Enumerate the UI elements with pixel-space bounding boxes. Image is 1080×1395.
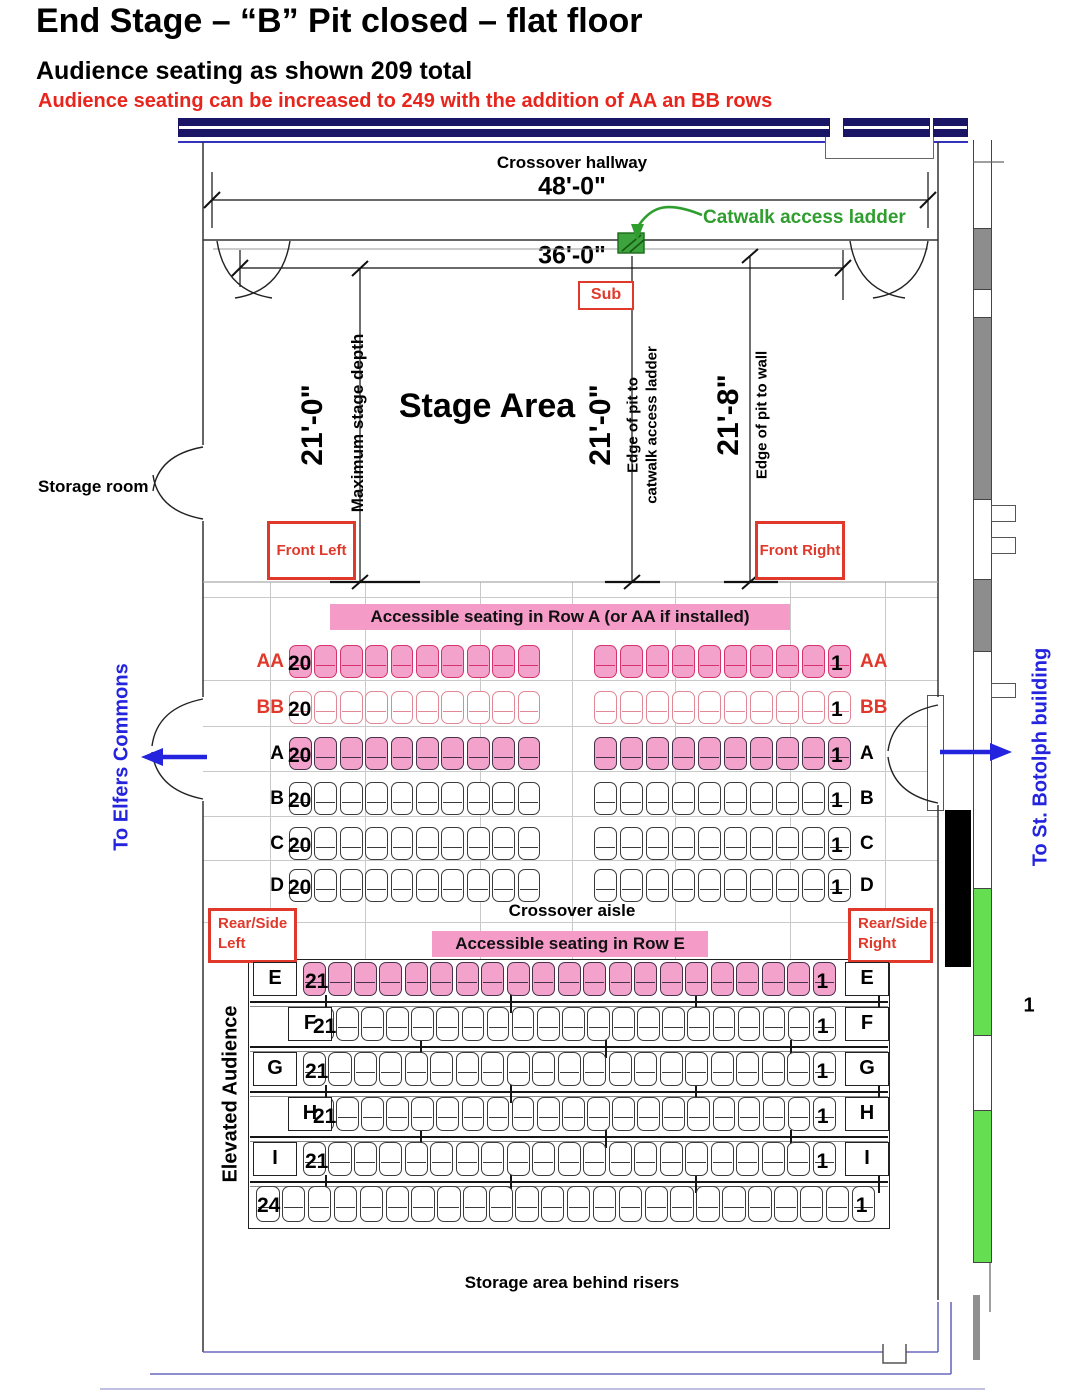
seat bbox=[391, 827, 414, 860]
seat bbox=[736, 962, 759, 996]
seat bbox=[672, 645, 695, 678]
seat bbox=[802, 869, 825, 902]
rear-side-right-box: Rear/Side Right bbox=[848, 908, 933, 963]
seat bbox=[441, 827, 464, 860]
seat bbox=[594, 782, 617, 815]
row-label: A bbox=[236, 744, 284, 763]
seat bbox=[762, 1142, 785, 1176]
stage-depth-dimension: 21'-0" bbox=[296, 384, 330, 465]
seat bbox=[379, 1142, 402, 1176]
seat-number: 1 bbox=[831, 790, 843, 811]
seat-number: 1 bbox=[831, 653, 843, 674]
seat bbox=[361, 1097, 384, 1131]
seat bbox=[340, 691, 363, 724]
seat bbox=[672, 827, 695, 860]
seat bbox=[492, 827, 515, 860]
row-label-box: I bbox=[253, 1142, 297, 1176]
row-label-box: E bbox=[253, 962, 297, 996]
wall-recess bbox=[825, 137, 934, 159]
seat bbox=[336, 1097, 359, 1131]
seat bbox=[802, 737, 825, 770]
row-label: D bbox=[860, 876, 908, 895]
seat bbox=[645, 1186, 669, 1222]
seat bbox=[736, 1142, 759, 1176]
pit-to-ladder-caption: catwalk access ladder bbox=[644, 346, 661, 504]
accessible-row-a-banner: Accessible seating in Row A (or AA if in… bbox=[330, 604, 790, 630]
botolph-arrowhead-icon bbox=[990, 743, 1012, 761]
seat bbox=[411, 1186, 435, 1222]
seat bbox=[365, 869, 388, 902]
seat bbox=[441, 737, 464, 770]
seat bbox=[340, 869, 363, 902]
seat bbox=[660, 1052, 683, 1086]
to-elfers-commons-label: To Elfers Commons bbox=[111, 663, 134, 850]
seat bbox=[750, 737, 773, 770]
seat bbox=[467, 782, 490, 815]
seat bbox=[467, 827, 490, 860]
seat bbox=[672, 737, 695, 770]
seat bbox=[738, 1097, 761, 1131]
seat bbox=[662, 1097, 685, 1131]
seat bbox=[411, 1007, 434, 1041]
seat bbox=[518, 645, 541, 678]
grid-line-h bbox=[203, 860, 938, 861]
stage-area-label: Stage Area bbox=[397, 384, 577, 430]
seat bbox=[724, 782, 747, 815]
seat bbox=[340, 782, 363, 815]
seat bbox=[354, 962, 377, 996]
seat-number: 1 bbox=[817, 1061, 829, 1082]
seat bbox=[748, 1186, 772, 1222]
seat bbox=[518, 782, 541, 815]
sub-speaker-box: Sub bbox=[578, 281, 634, 310]
seat bbox=[456, 1142, 479, 1176]
seat bbox=[634, 1142, 657, 1176]
row-label: C bbox=[236, 834, 284, 853]
seat bbox=[379, 1052, 402, 1086]
seat bbox=[724, 645, 747, 678]
seat bbox=[687, 1097, 710, 1131]
seat bbox=[379, 962, 402, 996]
seat bbox=[609, 1142, 632, 1176]
seat bbox=[762, 1052, 785, 1086]
seat bbox=[609, 962, 632, 996]
seat bbox=[391, 645, 414, 678]
seat bbox=[386, 1007, 409, 1041]
catwalk-pointer-arrow bbox=[639, 207, 702, 225]
seat bbox=[698, 827, 721, 860]
seat bbox=[391, 869, 414, 902]
seat bbox=[672, 782, 695, 815]
top-wall-segment bbox=[843, 118, 930, 137]
seat bbox=[800, 1186, 824, 1222]
seat bbox=[481, 962, 504, 996]
row-label: AA bbox=[860, 652, 908, 671]
seat bbox=[430, 1052, 453, 1086]
seat bbox=[774, 1186, 798, 1222]
seat bbox=[515, 1186, 539, 1222]
east-wall-gray-segment bbox=[973, 579, 992, 652]
page-subtitle: Audience seating as shown 209 total bbox=[36, 57, 472, 86]
seat bbox=[314, 691, 337, 724]
seat bbox=[698, 782, 721, 815]
seat bbox=[386, 1097, 409, 1131]
seat bbox=[391, 737, 414, 770]
seat bbox=[334, 1186, 358, 1222]
seat bbox=[802, 691, 825, 724]
seat-number: 1 bbox=[817, 1106, 829, 1127]
seat bbox=[416, 737, 439, 770]
storage-behind-risers-label: Storage area behind risers bbox=[465, 1273, 679, 1293]
seat-number: 1 bbox=[831, 745, 843, 766]
seat bbox=[724, 869, 747, 902]
seat bbox=[437, 1186, 461, 1222]
riser-line bbox=[250, 1091, 888, 1093]
seat bbox=[660, 962, 683, 996]
elfers-arrowhead-icon bbox=[141, 748, 163, 766]
seat bbox=[685, 1142, 708, 1176]
seat bbox=[646, 782, 669, 815]
top-wall-segment bbox=[178, 118, 830, 137]
seat bbox=[646, 827, 669, 860]
seat bbox=[340, 645, 363, 678]
seat bbox=[487, 1097, 510, 1131]
seat bbox=[594, 737, 617, 770]
wall-step bbox=[991, 683, 1016, 698]
lower-walls bbox=[150, 1302, 951, 1374]
seat bbox=[646, 737, 669, 770]
seat bbox=[467, 645, 490, 678]
seat bbox=[541, 1186, 565, 1222]
seat bbox=[594, 645, 617, 678]
seat bbox=[776, 737, 799, 770]
row-label-box: I bbox=[845, 1142, 889, 1176]
east-wall-gray-segment bbox=[973, 228, 992, 290]
seat-number: 20 bbox=[288, 745, 311, 766]
seat bbox=[787, 1052, 810, 1086]
seat bbox=[711, 1142, 734, 1176]
ladder-hatch bbox=[622, 235, 644, 252]
grid-line-h bbox=[203, 922, 938, 923]
seat bbox=[532, 962, 555, 996]
seat bbox=[365, 645, 388, 678]
seat bbox=[518, 869, 541, 902]
seat bbox=[593, 1186, 617, 1222]
seat bbox=[634, 1052, 657, 1086]
stage-left-door bbox=[217, 241, 290, 298]
seat bbox=[763, 1007, 786, 1041]
seat bbox=[620, 869, 643, 902]
row-label: BB bbox=[236, 698, 284, 717]
rear-side-left-box: Rear/Side Left bbox=[208, 908, 297, 963]
seat bbox=[558, 962, 581, 996]
seat bbox=[492, 645, 515, 678]
seat bbox=[713, 1007, 736, 1041]
seat-number: 1 bbox=[817, 1016, 829, 1037]
seat bbox=[441, 645, 464, 678]
seat bbox=[314, 782, 337, 815]
grid-line-h bbox=[203, 771, 938, 772]
row-label: A bbox=[860, 744, 908, 763]
seat-number: 1 bbox=[831, 835, 843, 856]
seat bbox=[750, 827, 773, 860]
row-label: D bbox=[236, 876, 284, 895]
wall-number-label: 1 bbox=[1023, 995, 1034, 1018]
seat bbox=[802, 827, 825, 860]
seat bbox=[507, 1052, 530, 1086]
row-label-box: H bbox=[845, 1097, 889, 1131]
crossover-hallway-label: Crossover hallway bbox=[497, 153, 647, 173]
pit-to-ladder-dimension: 21'-0" bbox=[584, 384, 618, 465]
seat bbox=[776, 827, 799, 860]
seat bbox=[328, 1052, 351, 1086]
elevated-audience-label: Elevated Audience bbox=[220, 1005, 243, 1182]
seat bbox=[713, 1097, 736, 1131]
seat bbox=[788, 1097, 811, 1131]
seat bbox=[724, 737, 747, 770]
seat bbox=[562, 1097, 585, 1131]
seat bbox=[594, 827, 617, 860]
seat bbox=[462, 1097, 485, 1131]
seat bbox=[416, 782, 439, 815]
seat bbox=[776, 691, 799, 724]
seat bbox=[456, 1052, 479, 1086]
east-wall-green-segment bbox=[973, 888, 992, 1036]
seat-number: 20 bbox=[288, 699, 311, 720]
seat bbox=[467, 869, 490, 902]
seat bbox=[660, 1142, 683, 1176]
seat bbox=[512, 1097, 535, 1131]
seat bbox=[738, 1007, 761, 1041]
row-label: B bbox=[860, 789, 908, 808]
seat bbox=[776, 645, 799, 678]
door-nook bbox=[883, 1344, 906, 1363]
row-label: C bbox=[860, 834, 908, 853]
seat bbox=[467, 691, 490, 724]
stage-depth-caption: Maximum stage depth bbox=[348, 334, 368, 513]
seat bbox=[314, 737, 337, 770]
seat bbox=[537, 1007, 560, 1041]
seat bbox=[436, 1097, 459, 1131]
seat-number: 20 bbox=[288, 877, 311, 898]
storage-room-door bbox=[153, 447, 203, 519]
seat bbox=[637, 1007, 660, 1041]
top-wall-segment bbox=[933, 118, 968, 137]
pit-to-ladder-caption: Edge of pit to bbox=[625, 377, 642, 473]
seat bbox=[637, 1097, 660, 1131]
seat bbox=[750, 869, 773, 902]
theater-floor-plan: End Stage – “B” Pit closed – flat floor … bbox=[0, 0, 1080, 1395]
seat-number: 1 bbox=[817, 971, 829, 992]
seat-number: 21 bbox=[305, 1151, 328, 1172]
elfers-exit-door bbox=[152, 699, 203, 799]
seat bbox=[314, 827, 337, 860]
seat bbox=[441, 869, 464, 902]
seat-number: 20 bbox=[288, 653, 311, 674]
seat-number: 20 bbox=[288, 835, 311, 856]
seat bbox=[492, 869, 515, 902]
seat bbox=[620, 691, 643, 724]
seat-number: 21 bbox=[313, 1106, 336, 1127]
seat bbox=[518, 691, 541, 724]
seat bbox=[763, 1097, 786, 1131]
seat bbox=[722, 1186, 746, 1222]
seat bbox=[776, 782, 799, 815]
seat bbox=[456, 962, 479, 996]
seat bbox=[365, 827, 388, 860]
seat bbox=[620, 737, 643, 770]
seat-number: 1 bbox=[817, 1151, 829, 1172]
seat bbox=[441, 691, 464, 724]
seat bbox=[620, 782, 643, 815]
seat bbox=[594, 691, 617, 724]
row-label-box: F bbox=[845, 1007, 889, 1041]
seat bbox=[354, 1142, 377, 1176]
east-wall-green-segment bbox=[973, 1110, 992, 1263]
row-label: B bbox=[236, 789, 284, 808]
seat bbox=[724, 827, 747, 860]
wall-gray-bar bbox=[973, 1295, 980, 1360]
seat bbox=[314, 869, 337, 902]
storage-room-label: Storage room bbox=[38, 477, 149, 497]
seat bbox=[696, 1186, 720, 1222]
seat bbox=[391, 691, 414, 724]
seat bbox=[558, 1052, 581, 1086]
seat-number: 21 bbox=[313, 1016, 336, 1037]
seat bbox=[430, 962, 453, 996]
row-label-box: E bbox=[845, 962, 889, 996]
seat bbox=[537, 1097, 560, 1131]
seat bbox=[462, 1007, 485, 1041]
seat bbox=[787, 1142, 810, 1176]
seat bbox=[360, 1186, 384, 1222]
seat bbox=[492, 691, 515, 724]
seat-number: 21 bbox=[305, 1061, 328, 1082]
seat bbox=[612, 1097, 635, 1131]
seat bbox=[802, 782, 825, 815]
seat bbox=[711, 1052, 734, 1086]
row-label-box: G bbox=[845, 1052, 889, 1086]
pit-to-wall-caption: Edge of pit to wall bbox=[754, 351, 771, 479]
seat bbox=[518, 827, 541, 860]
seat bbox=[583, 1142, 606, 1176]
seat bbox=[441, 782, 464, 815]
seat bbox=[430, 1142, 453, 1176]
seat bbox=[405, 1052, 428, 1086]
seat bbox=[698, 869, 721, 902]
seat bbox=[587, 1007, 610, 1041]
seat bbox=[314, 645, 337, 678]
seat bbox=[416, 691, 439, 724]
seat bbox=[354, 1052, 377, 1086]
seat bbox=[386, 1186, 410, 1222]
seat bbox=[512, 1007, 535, 1041]
seat bbox=[416, 827, 439, 860]
seat bbox=[436, 1007, 459, 1041]
seat bbox=[340, 737, 363, 770]
row-label-box: G bbox=[253, 1052, 297, 1086]
grid-line-h bbox=[203, 597, 938, 598]
front-right-position-box: Front Right bbox=[755, 521, 845, 580]
seat bbox=[328, 1142, 351, 1176]
seat-number: 24 bbox=[257, 1195, 280, 1216]
riser-line bbox=[250, 1181, 888, 1183]
seat bbox=[646, 869, 669, 902]
seat bbox=[776, 869, 799, 902]
row-label: BB bbox=[860, 698, 908, 717]
riser-tick bbox=[878, 1175, 880, 1193]
seat bbox=[411, 1097, 434, 1131]
wall-step bbox=[991, 537, 1016, 554]
seat-number: 1 bbox=[856, 1195, 868, 1216]
seat bbox=[620, 827, 643, 860]
seat bbox=[282, 1186, 306, 1222]
seat bbox=[662, 1007, 685, 1041]
seat bbox=[787, 962, 810, 996]
grid-line-h bbox=[203, 726, 938, 727]
seat bbox=[698, 737, 721, 770]
seat-number: 1 bbox=[831, 877, 843, 898]
riser-line bbox=[250, 1046, 888, 1048]
seat bbox=[685, 962, 708, 996]
seat bbox=[467, 737, 490, 770]
seat bbox=[750, 691, 773, 724]
hallway-width-dimension: 48'-0" bbox=[530, 173, 614, 202]
seat bbox=[672, 691, 695, 724]
seat bbox=[558, 1142, 581, 1176]
seat bbox=[416, 869, 439, 902]
riser-line bbox=[250, 1136, 888, 1138]
seat bbox=[532, 1052, 555, 1086]
east-wall bbox=[973, 140, 992, 1263]
grid-line-h bbox=[203, 816, 938, 817]
seat bbox=[698, 645, 721, 678]
pit-to-wall-dimension: 21'-8" bbox=[712, 374, 746, 455]
seat bbox=[481, 1142, 504, 1176]
catwalk-ladder-icon bbox=[618, 233, 644, 253]
seat bbox=[308, 1186, 332, 1222]
seat bbox=[518, 737, 541, 770]
seat bbox=[587, 1097, 610, 1131]
to-st-botolph-label: To St. Botolph building bbox=[1030, 648, 1053, 866]
seat bbox=[492, 782, 515, 815]
seat bbox=[788, 1007, 811, 1041]
seat bbox=[365, 691, 388, 724]
seat bbox=[365, 782, 388, 815]
seat bbox=[620, 645, 643, 678]
seat bbox=[328, 962, 351, 996]
seat bbox=[583, 962, 606, 996]
seat bbox=[594, 869, 617, 902]
seat bbox=[670, 1186, 694, 1222]
catwalk-ladder-label: Catwalk access ladder bbox=[703, 207, 906, 229]
seat bbox=[583, 1052, 606, 1086]
seat bbox=[634, 962, 657, 996]
stage-opening-dimension: 36'-0" bbox=[530, 242, 614, 271]
seat bbox=[687, 1007, 710, 1041]
riser-line bbox=[250, 1001, 888, 1003]
seat bbox=[487, 1007, 510, 1041]
seat bbox=[416, 645, 439, 678]
seat bbox=[802, 645, 825, 678]
seat bbox=[507, 962, 530, 996]
seat-number: 1 bbox=[831, 699, 843, 720]
seat bbox=[724, 691, 747, 724]
seat bbox=[405, 962, 428, 996]
seat bbox=[750, 782, 773, 815]
seat bbox=[646, 691, 669, 724]
seat bbox=[562, 1007, 585, 1041]
